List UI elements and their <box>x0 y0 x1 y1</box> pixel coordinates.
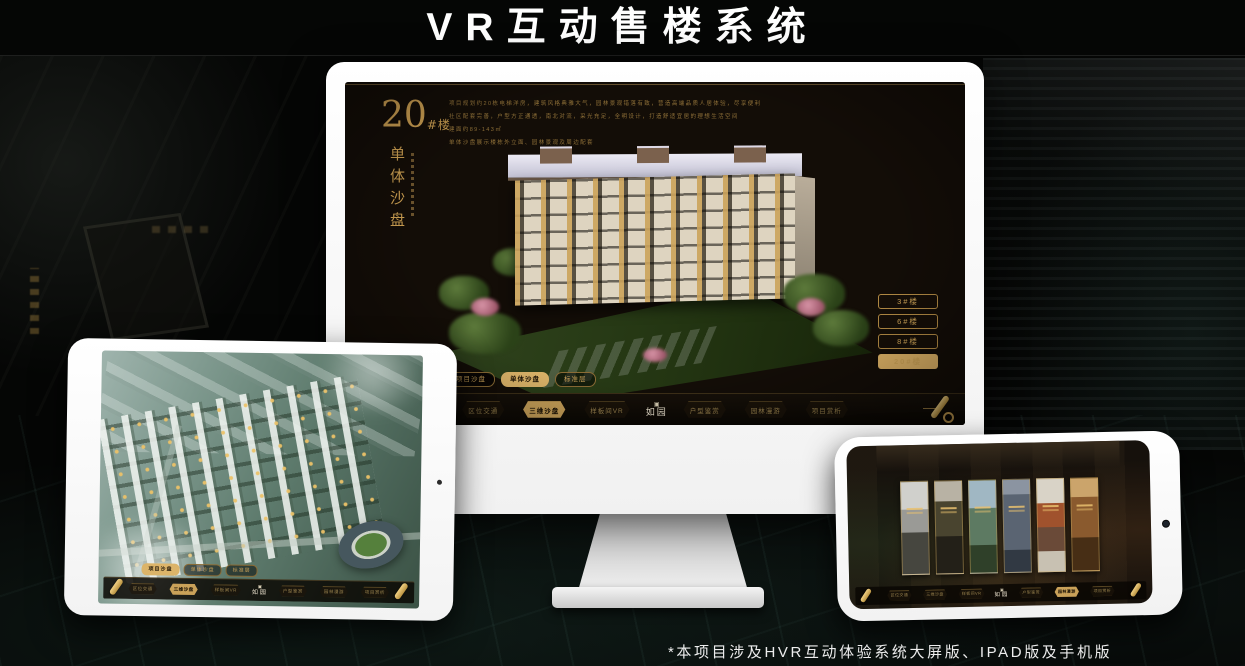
nav-item-location[interactable]: 区位交通 <box>459 401 507 419</box>
scroll-icon[interactable] <box>1130 582 1142 597</box>
tablet-nav-area: 项目沙盘 单体沙盘 标准层 区位交通 三维沙盘 样板间VR ▣ 如园 户型鉴赏 … <box>103 563 415 604</box>
nav-item-3d-sandbox[interactable]: 三维沙盘 <box>921 589 949 601</box>
floor-button-8[interactable]: 8#楼 <box>878 334 938 349</box>
building-3d-model[interactable] <box>515 150 795 305</box>
roof-cap <box>637 146 669 163</box>
subtab-single-sandbox[interactable]: 单体沙盘 <box>501 372 549 387</box>
subtab-standard-floor[interactable]: 标准层 <box>226 564 258 577</box>
section-title-vertical: 单体沙盘 <box>387 146 408 234</box>
floor-button-3[interactable]: 3#楼 <box>878 294 938 309</box>
description-line: 社区配套完善，户型方正通透，南北对流，采光充足，全明设计，打造舒适宜居的理想生活… <box>449 112 885 120</box>
subtab-project-sandbox[interactable]: 项目沙盘 <box>141 563 179 576</box>
nav-item-location[interactable]: 区位交通 <box>127 582 159 595</box>
tree <box>813 310 869 346</box>
nav-item-unit-plans[interactable]: 户型鉴赏 <box>681 401 729 419</box>
poster-canvas: VR互动售楼系统 20#楼 单体沙盘 项目规划约20栋电梯洋房，建筑风格典雅大气… <box>0 0 1245 666</box>
brand-logo-text: 如园 <box>646 409 668 418</box>
scroll-icon[interactable] <box>927 396 953 420</box>
subtab-single-sandbox[interactable]: 单体沙盘 <box>183 564 221 577</box>
building-description: 项目规划约20栋电梯洋房，建筑风格典雅大气，园林景观错落有致，营造高端品质人居体… <box>449 99 885 151</box>
brand-logo: ▣ 如园 <box>252 585 268 597</box>
tree <box>449 312 521 354</box>
header-divider <box>0 55 1245 56</box>
scroll-ring <box>943 412 954 423</box>
gallery-panel-autumn[interactable] <box>1036 478 1066 573</box>
building-facade <box>515 173 795 305</box>
nav-item-unit-plans[interactable]: 户型鉴赏 <box>277 585 309 598</box>
gallery-panel-building[interactable] <box>1002 479 1032 574</box>
floor-button-6[interactable]: 6#楼 <box>878 314 938 329</box>
floor-button-20[interactable]: 20#楼 <box>878 354 938 369</box>
brand-logo: ▣ 如园 <box>994 588 1009 599</box>
roof-cap <box>540 146 572 163</box>
blossom-shrub <box>797 298 825 316</box>
phone-device: 区位交通 三维沙盘 样板间VR ▣ 如园 户型鉴赏 园林漫游 项目赏析 <box>834 430 1183 621</box>
nav-item-model-room-vr[interactable]: 样板间VR <box>209 584 243 597</box>
nav-item-model-room-vr[interactable]: 样板间VR <box>957 588 987 600</box>
nav-item-project-gallery[interactable]: 项目赏析 <box>1088 585 1116 597</box>
gallery-panel-ink-courtyard[interactable] <box>900 481 930 576</box>
roof-cap <box>734 145 766 162</box>
tablet-camera-dot <box>437 479 442 484</box>
sandbox-subtabs: 项目沙盘 单体沙盘 标准层 <box>447 372 596 387</box>
seal-icon: ▣ <box>654 402 660 408</box>
scroll-icon[interactable] <box>109 578 124 596</box>
scroll-icon[interactable] <box>860 588 872 603</box>
tablet-device: 项目沙盘 单体沙盘 标准层 区位交通 三维沙盘 样板间VR ▣ 如园 户型鉴赏 … <box>64 338 457 621</box>
page-title: VR互动售楼系统 <box>0 2 1245 54</box>
nav-item-project-gallery[interactable]: 项目赏析 <box>359 586 391 599</box>
nav-item-3d-sandbox[interactable]: 三维沙盘 <box>168 583 200 596</box>
background-gold-text-specks <box>30 268 39 334</box>
footnote: *本项目涉及HVR互动体验系统大屏版、IPAD版及手机版 <box>668 641 1112 662</box>
monitor-stand-base <box>552 587 764 608</box>
scroll-icon[interactable] <box>394 582 409 600</box>
nav-item-3d-sandbox[interactable]: 三维沙盘 <box>520 401 568 419</box>
description-line: 项目规划约20栋电梯洋房，建筑风格典雅大气，园林景观错落有致，营造高端品质人居体… <box>449 99 885 107</box>
floor-button-group: 3#楼 6#楼 8#楼 20#楼 <box>878 294 938 374</box>
blossom-shrub <box>643 348 667 362</box>
tablet-screen: 项目沙盘 单体沙盘 标准层 区位交通 三维沙盘 样板间VR ▣ 如园 户型鉴赏 … <box>98 350 423 608</box>
gallery-panel-interior[interactable] <box>1070 477 1100 572</box>
background-gold-text-specks <box>152 226 212 233</box>
nav-item-unit-plans[interactable]: 户型鉴赏 <box>1017 587 1045 599</box>
background-city-texture <box>983 58 1245 450</box>
building-number-title: 20#楼 <box>381 96 451 145</box>
gallery-panel-garden[interactable] <box>968 479 998 574</box>
nav-item-location[interactable]: 区位交通 <box>886 590 914 602</box>
nav-item-garden-tour[interactable]: 园林漫游 <box>318 585 350 598</box>
section-title-caption <box>411 150 414 216</box>
brand-logo: ▣ 如园 <box>646 402 668 418</box>
monitor-stand-neck <box>578 513 748 591</box>
description-line: 单体沙盘展示楼栋外立面、园林景观及周边配套 <box>449 138 699 146</box>
blossom-shrub <box>471 298 499 316</box>
brand-logo-text: 如园 <box>994 593 1009 599</box>
nav-item-project-gallery[interactable]: 项目赏析 <box>803 401 851 419</box>
subtab-standard-floor[interactable]: 标准层 <box>555 372 596 387</box>
phone-screen: 区位交通 三维沙盘 样板间VR ▣ 如园 户型鉴赏 园林漫游 项目赏析 <box>846 440 1152 609</box>
nav-item-garden-tour[interactable]: 园林漫游 <box>742 401 790 419</box>
scene-gallery <box>900 477 1100 575</box>
description-line: 建面约89-143㎡ <box>449 125 559 133</box>
brand-logo-text: 如园 <box>252 590 268 596</box>
interior-ceiling-beam <box>877 441 1120 472</box>
nav-item-garden-tour[interactable]: 园林漫游 <box>1053 586 1081 598</box>
phone-camera-dot <box>1162 520 1170 528</box>
nav-item-model-room-vr[interactable]: 样板间VR <box>581 401 633 419</box>
gallery-panel-lobby[interactable] <box>934 480 964 575</box>
